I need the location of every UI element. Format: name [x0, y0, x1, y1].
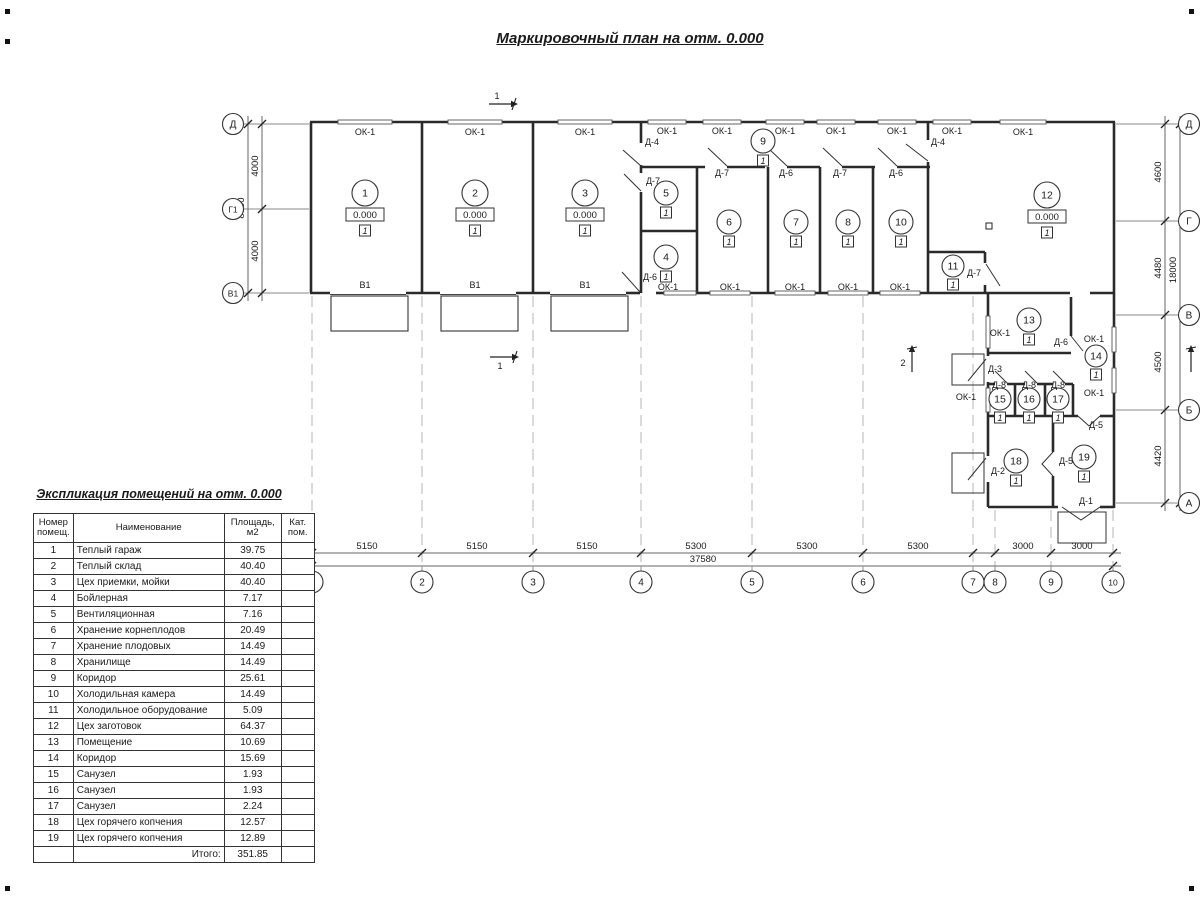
window-label: ОК-1 [1084, 388, 1104, 398]
room-category-cell [281, 559, 314, 575]
axis-bubble-label: 10 [1108, 577, 1118, 587]
window [1112, 327, 1116, 352]
window-label: ОК-1 [942, 126, 962, 136]
window [933, 120, 971, 124]
window-label: ОК-1 [658, 282, 678, 292]
room-number-cell: 3 [34, 575, 74, 591]
room-number: 15 [994, 394, 1006, 406]
explication-row: 14Коридор15.69 [34, 751, 315, 767]
explication-table: Номер помещ. Наименование Площадь, м2 Ка… [33, 513, 315, 863]
room-name-cell: Цех приемки, мойки [73, 575, 224, 591]
room-marker-6: 61 [717, 210, 741, 247]
window [766, 120, 804, 124]
dimension-label: 5300 [796, 541, 817, 552]
dimension-label: 5150 [356, 541, 377, 552]
col-header-area: Площадь, м2 [224, 514, 281, 543]
room-category-cell [281, 671, 314, 687]
door-label: Д-6 [889, 168, 903, 178]
floor-type-marker: 1 [898, 237, 903, 247]
room-area-cell: 15.69 [224, 751, 281, 767]
door-label: Д-7 [967, 268, 981, 278]
room-number: 18 [1010, 456, 1022, 468]
room-marker-15: 151 [989, 388, 1011, 423]
window-label: ОК-1 [720, 282, 740, 292]
room-number: 3 [582, 188, 588, 200]
window [1000, 120, 1046, 124]
section-mark-label: 1 [494, 91, 499, 101]
room-name-cell: Бойлерная [73, 591, 224, 607]
gate-apron [331, 296, 408, 331]
axis-bubble-label: 2 [419, 577, 425, 588]
room-number-cell: 8 [34, 655, 74, 671]
floor-type-marker: 1 [663, 208, 668, 218]
double-door-leaf [1062, 507, 1100, 520]
room-name-cell: Санузел [73, 783, 224, 799]
room-area-cell: 12.57 [224, 815, 281, 831]
dimension-label: 4420 [1153, 445, 1164, 466]
room-area-cell: 14.49 [224, 687, 281, 703]
room-number: 14 [1090, 351, 1102, 363]
room-name-cell: Санузел [73, 799, 224, 815]
room-number-cell: 4 [34, 591, 74, 607]
floor-type-marker: 1 [472, 226, 477, 236]
dimension-label: 4000 [250, 155, 261, 176]
room-number-cell: 1 [34, 543, 74, 559]
room-name-cell: Коридор [73, 751, 224, 767]
total-label: Итого: [73, 847, 224, 863]
floor-type-marker: 1 [582, 226, 587, 236]
room-name-cell: Теплый гараж [73, 543, 224, 559]
explication-total-row: Итого:351.85 [34, 847, 315, 863]
room-marker-12: 120.0001 [1028, 182, 1066, 238]
gate-label: В1 [579, 280, 590, 290]
explication-row: 10Холодильная камера14.49 [34, 687, 315, 703]
room-area-cell: 40.40 [224, 559, 281, 575]
column-marker [986, 223, 992, 229]
gate-label: В1 [469, 280, 480, 290]
floor-type-marker: 1 [793, 237, 798, 247]
door-leaf [622, 272, 640, 292]
col-header-number: Номер помещ. [34, 514, 74, 543]
floor-type-marker: 1 [1081, 472, 1086, 482]
room-number: 5 [663, 188, 669, 200]
room-category-cell [281, 767, 314, 783]
room-marker-9: 91 [751, 129, 775, 166]
floor-type-marker: 1 [950, 280, 955, 290]
explication-row: 16Санузел1.93 [34, 783, 315, 799]
window-label: ОК-1 [838, 282, 858, 292]
floor-type-marker: 1 [845, 237, 850, 247]
floor-type-marker: 1 [1044, 228, 1049, 238]
room-area-cell: 5.09 [224, 703, 281, 719]
dimension-label: 4480 [1153, 257, 1164, 278]
room-area-cell: 20.49 [224, 623, 281, 639]
door-label: Д-6 [779, 168, 793, 178]
floor-type-marker: 1 [1055, 413, 1060, 423]
floor-type-marker: 1 [1093, 370, 1098, 380]
explication-row: 8Хранилище14.49 [34, 655, 315, 671]
door-label: Д-7 [715, 168, 729, 178]
door-leaf [906, 144, 928, 161]
window [338, 120, 392, 124]
gate-label: В1 [359, 280, 370, 290]
room-number: 2 [472, 188, 478, 200]
col-header-name: Наименование [73, 514, 224, 543]
door-label: Д-7 [833, 168, 847, 178]
room-number-cell: 9 [34, 671, 74, 687]
room-marker-5: 51 [654, 181, 678, 218]
window-label: ОК-1 [355, 127, 375, 137]
room-name-cell: Холодильная камера [73, 687, 224, 703]
floor-type-marker: 1 [997, 413, 1002, 423]
axis-bubble-label: Д [1186, 119, 1193, 130]
room-number: 7 [793, 217, 799, 229]
room-number-cell: 7 [34, 639, 74, 655]
door-label: Д-4 [931, 137, 945, 147]
room-number: 11 [948, 261, 959, 273]
dimension-label: 4600 [1153, 161, 1164, 182]
axis-bubble-label: 6 [860, 577, 866, 588]
double-door-leaf [1042, 452, 1053, 476]
room-area-cell: 7.17 [224, 591, 281, 607]
room-area-cell: 1.93 [224, 767, 281, 783]
door-leaf [1071, 336, 1083, 351]
explication-row: 3Цех приемки, мойки40.40 [34, 575, 315, 591]
room-marker-2: 20.0001 [456, 180, 494, 236]
room-area-cell: 39.75 [224, 543, 281, 559]
room-name-cell: Вентиляционная [73, 607, 224, 623]
room-number-cell: 13 [34, 735, 74, 751]
room-area-cell: 12.89 [224, 831, 281, 847]
entrance-porch [952, 453, 984, 493]
dimension-label: 5150 [576, 541, 597, 552]
axis-bubble-label: В1 [228, 288, 239, 298]
floor-type-marker: 1 [726, 237, 731, 247]
room-number-cell: 15 [34, 767, 74, 783]
door-leaf [708, 148, 727, 166]
explication-row: 12Цех заготовок64.37 [34, 719, 315, 735]
door-label: Д-5 [1059, 456, 1073, 466]
room-name-cell: Хранилище [73, 655, 224, 671]
room-area-cell: 64.37 [224, 719, 281, 735]
room-number: 10 [895, 217, 907, 229]
door-leaf [823, 148, 842, 166]
explication-row: 5Вентиляционная7.16 [34, 607, 315, 623]
floor-type-marker: 1 [663, 272, 668, 282]
door-label: Д-8 [992, 380, 1006, 390]
section-mark-label: 2 [900, 358, 905, 368]
window [817, 120, 855, 124]
elevation-value: 0.000 [1035, 212, 1059, 223]
room-number: 9 [760, 136, 766, 148]
door-label: Д-8 [1022, 380, 1036, 390]
room-category-cell [281, 751, 314, 767]
door-leaf [623, 150, 641, 166]
explication-row: 18Цех горячего копчения12.57 [34, 815, 315, 831]
window-label: ОК-1 [1013, 127, 1033, 137]
door-label: Д-3 [988, 364, 1002, 374]
room-name-cell: Помещение [73, 735, 224, 751]
room-name-cell: Коридор [73, 671, 224, 687]
room-number: 17 [1052, 394, 1064, 406]
room-name-cell: Теплый склад [73, 559, 224, 575]
door-leaf [878, 148, 897, 166]
room-area-cell: 14.49 [224, 655, 281, 671]
window [448, 120, 502, 124]
room-marker-14: 141 [1085, 345, 1107, 380]
door-label: Д-2 [991, 466, 1005, 476]
window-label: ОК-1 [990, 328, 1010, 338]
window [1112, 368, 1116, 393]
window-label: ОК-1 [1084, 334, 1104, 344]
axis-bubble-label: Д [230, 119, 237, 130]
total-value: 351.85 [224, 847, 281, 863]
room-area-cell: 2.24 [224, 799, 281, 815]
room-number: 13 [1023, 315, 1035, 327]
door-label: Д-6 [1054, 337, 1068, 347]
axis-bubble-label: 4 [638, 577, 644, 588]
room-category-cell [281, 799, 314, 815]
floor-type-marker: 1 [1026, 413, 1031, 423]
room-marker-19: 191 [1072, 445, 1096, 482]
room-marker-17: 171 [1047, 388, 1069, 423]
window-label: ОК-1 [657, 126, 677, 136]
dimension-label: 5300 [907, 541, 928, 552]
room-number: 8 [845, 217, 851, 229]
room-number: 12 [1041, 190, 1053, 202]
room-name-cell: Холодильное оборудование [73, 703, 224, 719]
window-label: ОК-1 [785, 282, 805, 292]
room-marker-10: 101 [889, 210, 913, 247]
door-label: Д-8 [1051, 380, 1065, 390]
room-category-cell [281, 831, 314, 847]
room-number-cell: 6 [34, 623, 74, 639]
window-label: ОК-1 [890, 282, 910, 292]
room-name-cell: Санузел [73, 767, 224, 783]
room-name-cell: Цех горячего копчения [73, 831, 224, 847]
room-category-cell [281, 543, 314, 559]
room-number-cell: 16 [34, 783, 74, 799]
explication-header-row: Номер помещ. Наименование Площадь, м2 Ка… [34, 514, 315, 543]
axis-bubble-label: А [1186, 498, 1193, 509]
window [558, 120, 612, 124]
room-category-cell [281, 591, 314, 607]
room-area-cell: 7.16 [224, 607, 281, 623]
room-name-cell: Цех горячего копчения [73, 815, 224, 831]
room-number-cell: 5 [34, 607, 74, 623]
explication-row: 17Санузел2.24 [34, 799, 315, 815]
window [878, 120, 916, 124]
room-number: 1 [362, 188, 368, 200]
room-number: 6 [726, 217, 732, 229]
dimension-label: 5150 [466, 541, 487, 552]
door-label: Д-4 [645, 137, 659, 147]
elevation-value: 0.000 [573, 210, 597, 221]
window-label: ОК-1 [826, 126, 846, 136]
gate-apron [551, 296, 628, 331]
axis-bubble-label: 9 [1048, 577, 1054, 588]
room-markers: 10.000120.000130.00014151617181911011111… [346, 129, 1107, 486]
axis-bubble-label: Г [1186, 216, 1192, 227]
door-label: Д-7 [646, 176, 660, 186]
explication-row: 13Помещение10.69 [34, 735, 315, 751]
room-number-cell: 19 [34, 831, 74, 847]
window [703, 120, 741, 124]
room-category-cell [281, 719, 314, 735]
room-area-cell: 10.69 [224, 735, 281, 751]
elevation-value: 0.000 [463, 210, 487, 221]
door-leaf [624, 174, 641, 191]
window-label: ОК-1 [887, 126, 907, 136]
dimension-label: 37580 [690, 554, 716, 565]
room-category-cell [281, 655, 314, 671]
room-category-cell [281, 623, 314, 639]
room-marker-8: 81 [836, 210, 860, 247]
room-name-cell: Цех заготовок [73, 719, 224, 735]
room-name-cell: Хранение корнеплодов [73, 623, 224, 639]
dimension-label: 4500 [1153, 351, 1164, 372]
room-number: 4 [663, 252, 669, 264]
room-area-cell: 25.61 [224, 671, 281, 687]
explication-row: 7Хранение плодовых14.49 [34, 639, 315, 655]
dimension-label: 18000 [1168, 257, 1179, 283]
entrance-porch [1058, 512, 1106, 543]
door-leaf [968, 458, 986, 480]
axis-bubble-label: 8 [992, 577, 998, 588]
axis-bubble-label: 5 [749, 577, 755, 588]
axis-bubble-label: 7 [970, 577, 976, 588]
room-category-cell [281, 639, 314, 655]
window-label: ОК-1 [712, 126, 732, 136]
dimension-label: 5300 [685, 541, 706, 552]
room-number-cell: 14 [34, 751, 74, 767]
col-header-category: Кат. пом. [281, 514, 314, 543]
dimension-label: 4000 [250, 240, 261, 261]
room-category-cell [281, 687, 314, 703]
door-leaf [986, 264, 1000, 286]
gate-apron [441, 296, 518, 331]
room-category-cell [281, 815, 314, 831]
room-marker-4: 41 [654, 245, 678, 282]
explication-row: 4Бойлерная7.17 [34, 591, 315, 607]
door-label: Д-6 [643, 272, 657, 282]
room-category-cell [281, 735, 314, 751]
explication-row: 6Хранение корнеплодов20.49 [34, 623, 315, 639]
window-label: ОК-1 [956, 392, 976, 402]
axis-bubble-label: Г1 [228, 204, 238, 214]
room-area-cell: 40.40 [224, 575, 281, 591]
room-number-cell: 11 [34, 703, 74, 719]
floor-type-marker: 1 [362, 226, 367, 236]
room-marker-7: 71 [784, 210, 808, 247]
door-label: Д-1 [1079, 496, 1093, 506]
room-category-cell [281, 607, 314, 623]
room-category-cell [281, 703, 314, 719]
room-number: 16 [1023, 394, 1035, 406]
window [648, 120, 686, 124]
room-marker-1: 10.0001 [346, 180, 384, 236]
explication-row: 2Теплый склад40.40 [34, 559, 315, 575]
drawing-sheet: Маркировочный план на отм. 0.000 4000400… [0, 0, 1200, 900]
room-number-cell: 18 [34, 815, 74, 831]
room-marker-13: 131 [1017, 308, 1041, 345]
room-category-cell [281, 575, 314, 591]
room-area-cell: 1.93 [224, 783, 281, 799]
elevation-value: 0.000 [353, 210, 377, 221]
floor-type-marker: 1 [1026, 335, 1031, 345]
room-marker-18: 181 [1004, 449, 1028, 486]
explication-row: 1Теплый гараж39.75 [34, 543, 315, 559]
axis-bubble-label: В [1186, 310, 1193, 321]
floor-type-marker: 1 [760, 156, 765, 166]
floor-type-marker: 1 [1013, 476, 1018, 486]
section-mark-label: 1 [497, 361, 502, 371]
window-label: ОК-1 [465, 127, 485, 137]
room-name-cell: Хранение плодовых [73, 639, 224, 655]
axis-bubble-label: Б [1186, 405, 1193, 416]
room-number-cell: 12 [34, 719, 74, 735]
room-number: 19 [1078, 452, 1090, 464]
door-label: Д-5 [1089, 420, 1103, 430]
room-number-cell: 2 [34, 559, 74, 575]
room-marker-16: 161 [1018, 388, 1040, 423]
walls [310, 122, 1115, 508]
room-marker-3: 30.0001 [566, 180, 604, 236]
room-marker-11: 111 [942, 255, 964, 290]
window-label: ОК-1 [775, 126, 795, 136]
explication-row: 11Холодильное оборудование5.09 [34, 703, 315, 719]
explication-title: Экспликация помещений на отм. 0.000 [33, 487, 285, 501]
door-leaf [968, 359, 986, 381]
dimension-label: 3000 [1012, 541, 1033, 552]
room-number-cell: 10 [34, 687, 74, 703]
room-category-cell [281, 783, 314, 799]
axis-bubble-label: 3 [530, 577, 536, 588]
room-number-cell: 17 [34, 799, 74, 815]
explication-row: 15Санузел1.93 [34, 767, 315, 783]
room-area-cell: 14.49 [224, 639, 281, 655]
window-label: ОК-1 [575, 127, 595, 137]
explication-row: 9Коридор25.61 [34, 671, 315, 687]
explication-row: 19Цех горячего копчения12.89 [34, 831, 315, 847]
